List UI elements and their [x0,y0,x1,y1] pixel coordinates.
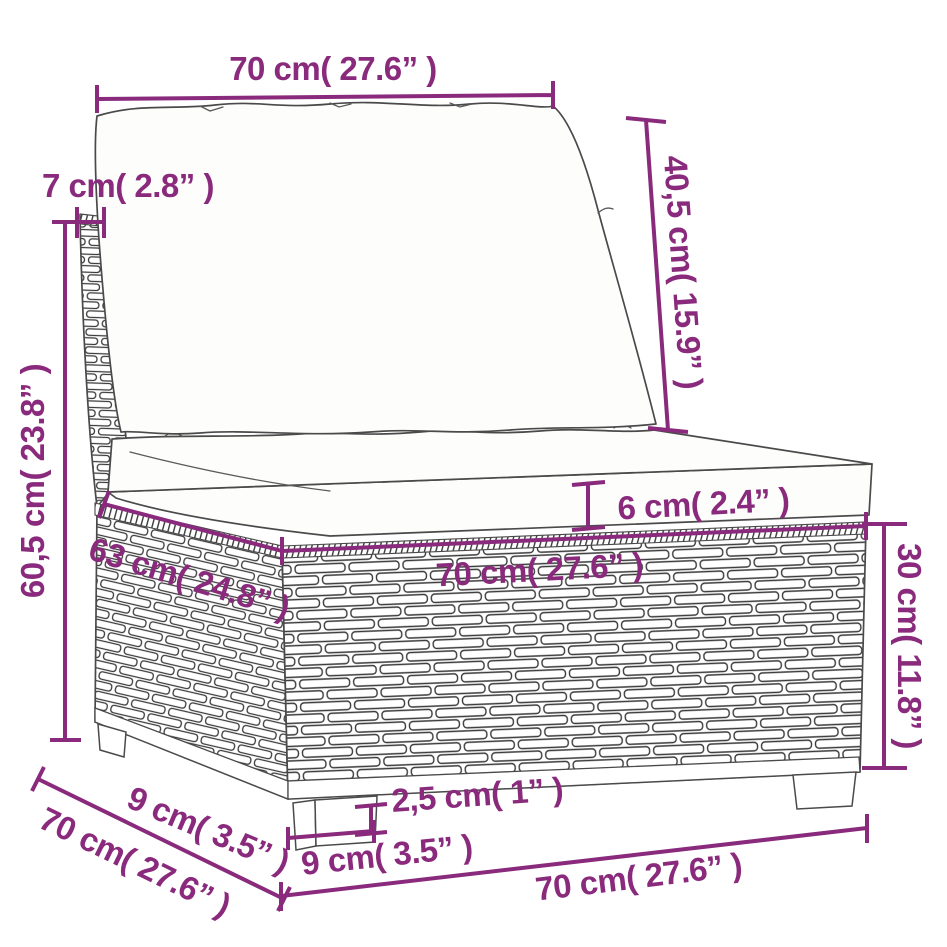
dimension-diagram: 70 cm( 27.6” ) 7 cm( 2.8” ) 40,5 cm( 15.… [0,0,947,947]
front-right-leg [793,772,856,809]
dim-base-height: 30 cm( 11.8” ) [862,524,928,768]
sofa-line-drawing [80,103,872,850]
dim-total-height: 60,5 cm( 23.8” ) [14,222,81,740]
front-left-leg-side [293,800,316,850]
sofa-dimension-drawing: 70 cm( 27.6” ) 7 cm( 2.8” ) 40,5 cm( 15.… [0,0,947,947]
dimension-line [50,222,81,740]
label-back-cushion-height: 40,5 cm( 15.9” ) [657,154,710,390]
label-base-height: 30 cm( 11.8” ) [891,543,928,749]
back-cushion-body [95,103,656,434]
label-back-panel-thickness: 7 cm( 2.8” ) [42,167,214,204]
back-cushion [95,103,656,434]
label-total-height: 60,5 cm( 23.8” ) [14,364,51,598]
dim-depth-diagonal: 9 cm( 3.5” ) 70 cm( 27.6” ) [32,767,295,924]
label-back-cushion-width: 70 cm( 27.6” ) [229,50,437,87]
